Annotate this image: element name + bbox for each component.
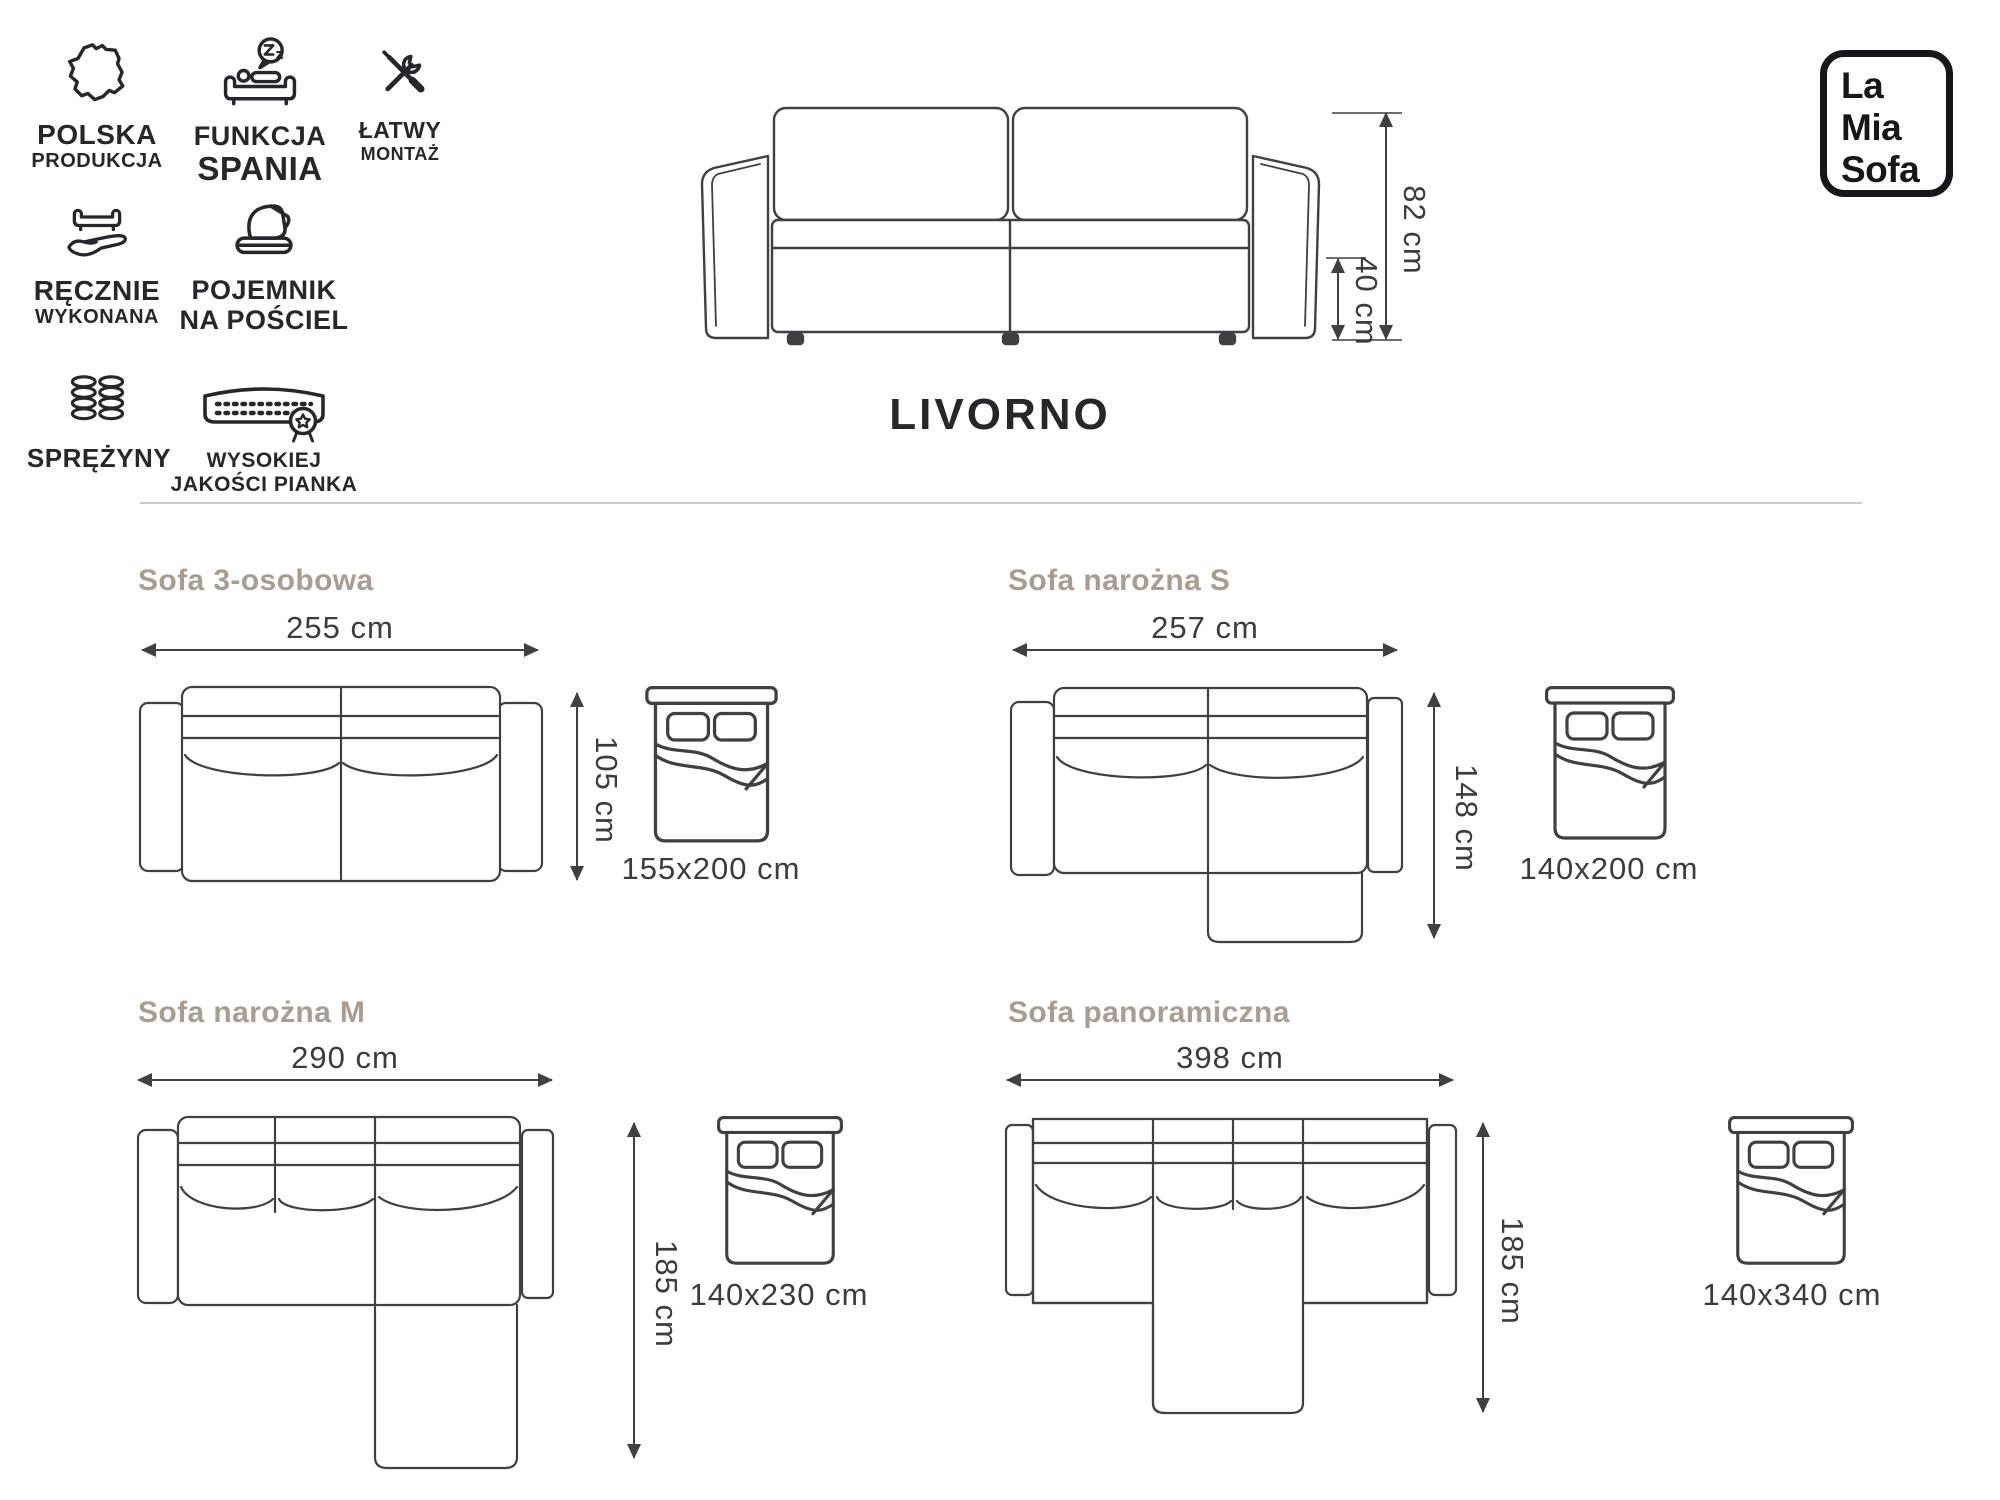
width-dimension-label: 255 cm — [240, 610, 440, 646]
springs-icon — [61, 362, 137, 438]
feature-label: SPRĘŻYNY — [27, 444, 171, 473]
height-dimension-label: 82 cm — [1396, 150, 1432, 310]
bed-size-icon — [1728, 1116, 1854, 1269]
width-dimension-label: 290 cm — [245, 1040, 445, 1076]
variant-title: Sofa narożna S — [1008, 564, 1230, 598]
seat-height-dimension-arrow — [1337, 259, 1339, 339]
sofa-top-view-panoramic — [1005, 1117, 1457, 1415]
depth-dimension-label: 105 cm — [588, 710, 624, 870]
width-dimension-label: 257 cm — [1105, 610, 1305, 646]
feature-sublabel: JAKOŚCI PIANKA — [171, 473, 358, 497]
bedding-container-icon — [222, 186, 306, 270]
section-divider — [140, 502, 1862, 504]
feature-wysokiej-jakosci-pianka: WYSOKIEJ JAKOŚCI PIANKA — [168, 372, 360, 496]
feature-pojemnik-na-posciel: POJEMNIK NA POŚCIEL — [180, 186, 348, 335]
logo-line: Sofa — [1841, 149, 1946, 191]
bed-size-label: 140x200 cm — [1509, 851, 1709, 887]
logo-line: Mia — [1841, 107, 1946, 149]
sofa-top-view-3-seater — [138, 683, 544, 885]
width-dimension-label: 398 cm — [1130, 1040, 1330, 1076]
bed-size-icon — [645, 686, 778, 847]
feature-label: POJEMNIK — [191, 275, 336, 305]
feature-label: WYSOKIEJ — [207, 449, 322, 473]
feature-sublabel: NA POŚCIEL — [179, 305, 348, 335]
feature-latwy-montaz: ŁATWY MONTAŻ — [330, 40, 470, 164]
variant-title: Sofa 3-osobowa — [138, 564, 374, 598]
product-name: LIVORNO — [800, 390, 1200, 440]
feature-label: POLSKA — [37, 119, 157, 150]
sofa-top-view-corner-m — [134, 1117, 554, 1470]
feature-sublabel: MONTAŻ — [361, 144, 440, 164]
feature-label: FUNKCJA — [194, 121, 327, 151]
foam-quality-icon — [197, 372, 331, 444]
bed-size-label: 140x230 cm — [679, 1277, 879, 1313]
logo-line: La — [1841, 65, 1946, 107]
variant-title: Sofa panoramiczna — [1008, 996, 1290, 1030]
height-dimension-arrow — [1385, 113, 1387, 339]
feature-sprezyny: SPRĘŻYNY — [20, 362, 178, 473]
feature-funkcja-spania: FUNKCJA SPANIA — [182, 34, 338, 188]
depth-dimension-label: 148 cm — [1448, 738, 1484, 898]
sleep-function-icon — [219, 34, 301, 116]
feature-sublabel: WYKONANA — [35, 306, 159, 328]
feature-recznie-wykonana: RĘCZNIE WYKONANA — [20, 192, 174, 329]
sofa-front-view-drawing — [688, 98, 1333, 348]
hand-sofa-icon — [58, 192, 136, 270]
depth-dimension-arrow — [1482, 1123, 1484, 1412]
bed-size-label: 155x200 cm — [611, 851, 811, 887]
width-dimension-arrow — [1007, 1079, 1453, 1081]
depth-dimension-arrow — [1433, 693, 1435, 938]
bed-size-icon — [1545, 686, 1675, 844]
bed-size-label: 140x340 cm — [1692, 1277, 1892, 1313]
spec-sheet: POLSKA PRODUKCJA FUNKCJA SPANIA ŁATWY MO… — [0, 0, 2000, 1500]
depth-dimension-label: 185 cm — [1494, 1191, 1530, 1351]
feature-polska-produkcja: POLSKA PRODUKCJA — [20, 38, 174, 173]
bed-size-icon — [717, 1116, 843, 1269]
feature-sublabel: PRODUKCJA — [31, 150, 162, 172]
seat-height-dimension-label: 40 cm — [1348, 221, 1384, 381]
width-dimension-arrow — [1013, 649, 1397, 651]
feature-sublabel: SPANIA — [197, 151, 322, 188]
width-dimension-arrow — [138, 1079, 552, 1081]
variant-title: Sofa narożna M — [138, 996, 365, 1030]
poland-map-icon — [59, 38, 135, 114]
width-dimension-arrow — [142, 649, 538, 651]
depth-dimension-arrow — [576, 693, 578, 880]
sofa-top-view-corner-s — [1010, 685, 1403, 947]
tools-icon — [364, 40, 436, 112]
depth-dimension-arrow — [633, 1123, 635, 1458]
feature-label: ŁATWY — [359, 118, 442, 144]
brand-logo: La Mia Sofa — [1820, 50, 1953, 197]
feature-label: RĘCZNIE — [34, 275, 160, 306]
